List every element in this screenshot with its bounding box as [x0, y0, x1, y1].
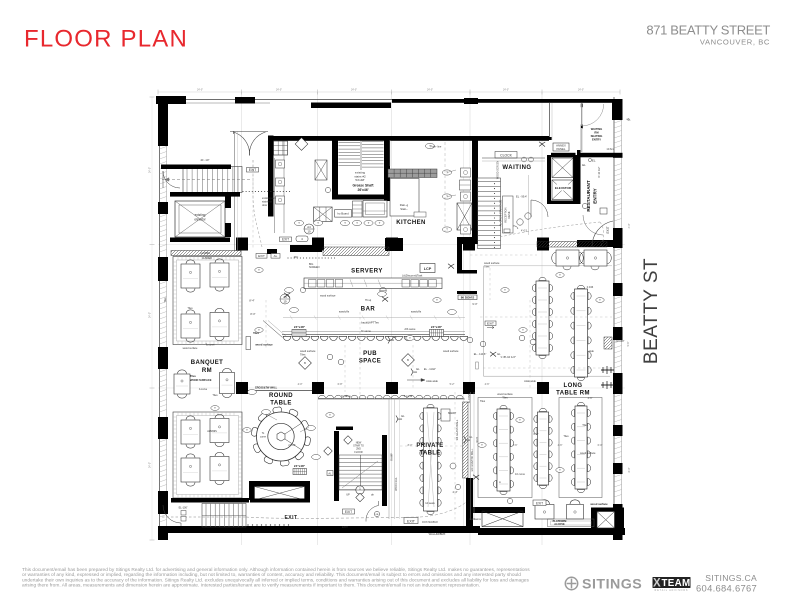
svg-text:EXIT: EXIT — [249, 168, 257, 172]
svg-text:DESK: DESK — [507, 211, 511, 218]
svg-text:EXIT: EXIT — [345, 510, 352, 514]
svg-text:FIRST&WBMX: FIRST&WBMX — [422, 521, 438, 524]
svg-text:RM: RM — [202, 368, 212, 374]
svg-text:Tiles: Tiles — [300, 352, 306, 356]
svg-text:EXIT: EXIT — [284, 515, 297, 521]
svg-text:26'x46': 26'x46' — [357, 188, 368, 192]
svg-text:Tiles: Tiles — [212, 394, 218, 397]
svg-text:SPACE: SPACE — [359, 359, 381, 365]
svg-text:24'-0": 24'-0" — [427, 89, 433, 92]
svg-text:3/4 B: 3/4 B — [476, 437, 479, 443]
svg-text:4'-6": 4'-6" — [588, 397, 593, 400]
svg-text:9'-6": 9'-6" — [627, 341, 630, 346]
svg-text:ALM99S: ALM99S — [207, 430, 217, 433]
svg-text:EL - 110A": EL - 110A" — [424, 367, 436, 371]
svg-text:TABLE RM: TABLE RM — [556, 391, 590, 397]
svg-text:WOOD SCREEN: WOOD SCREEN — [497, 161, 500, 180]
svg-text:wood surface: wood surface — [254, 343, 273, 347]
svg-text:ENTRY: ENTRY — [592, 138, 601, 142]
svg-text:EXIT: EXIT — [342, 525, 348, 529]
svg-text:SITINGS: SITINGS — [582, 577, 642, 593]
svg-text:8'-0": 8'-0" — [628, 467, 631, 472]
svg-text:ENTRY: ENTRY — [593, 188, 598, 203]
svg-text:4'-6": 4'-6" — [558, 444, 563, 447]
svg-text:EL: EL — [393, 335, 397, 339]
svg-text:Tc same: Tc same — [361, 329, 371, 333]
svg-text:EXIT: EXIT — [258, 254, 265, 258]
svg-text:B: B — [304, 361, 306, 365]
svg-text:24'-0": 24'-0" — [149, 462, 152, 468]
svg-text:4'-0": 4'-0" — [628, 223, 631, 228]
svg-text:RESTAURANT: RESTAURANT — [586, 180, 591, 211]
svg-text:WOOD SURFACE: WOOD SURFACE — [190, 378, 212, 382]
svg-text:Tc same: Tc same — [341, 394, 351, 398]
svg-text:AL OPEN STAIRCASE: AL OPEN STAIRCASE — [499, 200, 503, 227]
svg-text:Tiles: Tiles — [190, 374, 196, 378]
svg-text:ROUND: ROUND — [269, 393, 293, 399]
svg-text:Tiles: Tiles — [187, 307, 193, 310]
svg-text:A4: A4 — [307, 225, 311, 229]
svg-text:8'-0": 8'-0" — [408, 444, 413, 447]
svg-text:24'-0": 24'-0" — [503, 89, 509, 92]
svg-text:EXIT: EXIT — [536, 501, 543, 505]
svg-text:Stati--: Stati-- — [400, 207, 408, 211]
svg-text:24"x48": 24"x48" — [431, 325, 443, 329]
svg-text:or warranties of any kind, exp: or warranties of any kind, expressed or … — [22, 572, 521, 578]
svg-text:Tc curve: Tc curve — [205, 344, 215, 347]
svg-text:871 BEATTY STREET: 871 BEATTY STREET — [646, 23, 770, 38]
svg-text:EIC GRAPHIC WALL: EIC GRAPHIC WALL — [471, 448, 474, 471]
svg-text:A curve: A curve — [199, 388, 208, 391]
svg-text:6'-10 1/2": 6'-10 1/2" — [597, 166, 601, 177]
svg-text:wood surface: wood surface — [589, 502, 608, 506]
svg-text:LONG: LONG — [564, 383, 583, 389]
svg-text:24'-0": 24'-0" — [197, 89, 203, 92]
svg-text:EL - 99.4': EL - 99.4' — [516, 195, 527, 199]
svg-text:AL: AL — [274, 254, 278, 258]
svg-text:24'-0": 24'-0" — [149, 312, 152, 318]
svg-text:Tiles: Tiles — [480, 400, 486, 403]
svg-text:ho Board: ho Board — [337, 212, 349, 216]
svg-text:24'-0": 24'-0" — [149, 167, 152, 173]
svg-text:stair/exit: stair/exit — [262, 199, 272, 203]
svg-text:EXIT: EXIT — [282, 238, 289, 242]
svg-text:X: X — [653, 578, 661, 590]
svg-text:d/S same: d/S same — [405, 327, 417, 331]
svg-text:Aisle aisle: Aisle aisle — [524, 379, 536, 383]
svg-text:Lt&Disconn&Task: Lt&Disconn&Task — [402, 274, 423, 278]
svg-text:24"x48": 24"x48" — [294, 325, 306, 329]
svg-text:wood surface: wood surface — [183, 347, 198, 350]
svg-text:24'-0": 24'-0" — [276, 89, 282, 92]
svg-text:wood surface: wood surface — [443, 349, 459, 353]
svg-text:24'-0": 24'-0" — [351, 89, 357, 92]
svg-text:3/4 GLASS WALL: 3/4 GLASS WALL — [455, 419, 459, 440]
svg-text:TEAM: TEAM — [662, 578, 691, 589]
svg-text:Fab+ line: Fab+ line — [431, 145, 442, 149]
svg-text:BANQUET: BANQUET — [191, 360, 223, 366]
svg-text:EL: EL — [469, 435, 473, 439]
svg-text:6 curve: 6 curve — [404, 394, 413, 398]
svg-text:EL - 110.6": EL - 110.6" — [474, 352, 487, 356]
svg-text:ALCOVE: ALCOVE — [554, 523, 565, 526]
svg-text:EXIT: EXIT — [606, 226, 610, 233]
svg-text:SERVERY: SERVERY — [351, 269, 383, 275]
svg-text:RAMP: RAMP — [390, 453, 394, 461]
svg-text:wood surface: wood surface — [497, 392, 513, 396]
svg-text:saw/offs: saw/offs — [339, 310, 350, 314]
svg-text:PANEL: PANEL — [557, 147, 566, 151]
svg-text:EL: EL — [416, 367, 420, 371]
svg-text:AU99ER: AU99ER — [202, 256, 212, 260]
svg-text:existing exit: existing exit — [262, 196, 276, 200]
svg-text:24"x48": 24"x48" — [294, 464, 306, 468]
svg-text:EL: EL — [401, 414, 405, 418]
svg-text:9'-0": 9'-0" — [472, 302, 477, 306]
svg-text:Tiles: Tiles — [484, 264, 490, 268]
svg-text:BAR: BAR — [361, 307, 376, 313]
svg-text:4'-6": 4'-6" — [513, 444, 518, 447]
svg-text:6'-8": 6'-8" — [338, 383, 343, 386]
svg-text:54'x48': 54'x48' — [355, 178, 365, 182]
svg-text:SCREEN: SCREEN — [309, 266, 320, 269]
svg-text:CLOCK: CLOCK — [500, 153, 512, 157]
svg-text:wood surface: wood surface — [300, 349, 316, 353]
svg-text:8'-4": 8'-4" — [249, 299, 254, 303]
svg-text:WAITING: WAITING — [591, 127, 603, 131]
svg-text:BEATTY ST: BEATTY ST — [641, 258, 662, 364]
svg-text:Tiles: Tiles — [582, 423, 588, 427]
svg-text:19: 19 — [307, 230, 311, 234]
svg-text:LCP: LCP — [424, 267, 432, 271]
svg-text:wood surface: wood surface — [320, 294, 336, 298]
svg-text:wood surface: wood surface — [580, 451, 596, 455]
svg-text:WOOD RAIL: WOOD RAIL — [395, 476, 398, 490]
svg-text:6'-0": 6'-0" — [598, 444, 603, 447]
svg-text:8'-0": 8'-0" — [250, 312, 255, 316]
svg-text:KITCHEN: KITCHEN — [396, 220, 425, 226]
svg-text:Tiles: Tiles — [502, 395, 508, 399]
svg-text:Aisle aisle: Aisle aisle — [426, 379, 438, 383]
svg-text:0.046: 0.046 — [587, 285, 594, 289]
svg-text:5'-2": 5'-2" — [450, 383, 455, 386]
svg-text:FLOOR: FLOOR — [354, 451, 363, 454]
svg-text:elevator: elevator — [194, 218, 206, 222]
svg-text:FLOOR PLAN: FLOOR PLAN — [24, 26, 188, 53]
svg-text:WALL&WBMX: WALL&WBMX — [429, 532, 446, 536]
svg-text:76 sq: 76 sq — [365, 298, 372, 302]
svg-text:CROSS&TW WALL: CROSS&TW WALL — [255, 387, 278, 390]
svg-text:RECEPTION: RECEPTION — [504, 207, 508, 222]
svg-text:RIC: RIC — [294, 255, 299, 259]
svg-text:6'-10 1/2": 6'-10 1/2" — [504, 355, 516, 359]
svg-text:RETAIL ADVISORS: RETAIL ADVISORS — [655, 589, 689, 592]
svg-text:AL: AL — [328, 471, 332, 475]
svg-text:41'-10": 41'-10" — [200, 158, 209, 162]
svg-text:curve: curve — [260, 435, 267, 438]
svg-text:86 DON'S: 86 DON'S — [461, 296, 475, 300]
svg-text:4'-0": 4'-0" — [298, 383, 303, 386]
svg-text:6'-0": 6'-0" — [534, 433, 539, 436]
svg-text:Tiles: Tiles — [164, 297, 167, 303]
svg-text:Tiles: Tiles — [563, 435, 569, 438]
svg-text:m: m — [499, 481, 501, 484]
svg-text:EL-100': EL-100' — [179, 506, 188, 510]
svg-text:SEATING: SEATING — [591, 134, 603, 138]
svg-text:VANCOUVER, BC: VANCOUVER, BC — [700, 38, 770, 47]
svg-text:PUB: PUB — [363, 351, 377, 357]
svg-text:arising there from. All areas,: arising there from. All areas, measureme… — [22, 583, 480, 589]
svg-text:existing: existing — [195, 213, 206, 217]
svg-text:9'-0": 9'-0" — [501, 356, 506, 359]
svg-text:24'-0": 24'-0" — [578, 89, 584, 92]
svg-text:UP: UP — [346, 493, 350, 497]
svg-text:EL: EL — [582, 163, 586, 167]
svg-text:24'x48': 24'x48' — [288, 444, 296, 447]
svg-text:B: B — [407, 358, 409, 362]
svg-text:mall&wmx: mall&wmx — [469, 517, 482, 521]
svg-text:SMART: SMART — [448, 412, 457, 415]
svg-text:ELEVATOR: ELEVATOR — [555, 186, 572, 190]
svg-text:TABLE: TABLE — [270, 401, 292, 407]
svg-text:10.6m: 10.6m — [606, 147, 613, 151]
svg-text:undertake their own inquiries: undertake their own inquiries as to the … — [22, 577, 529, 583]
svg-text:4'-6": 4'-6" — [485, 383, 490, 386]
svg-text:EXIT: EXIT — [407, 519, 416, 523]
svg-text:back&APTTes: back&APTTes — [361, 321, 379, 325]
svg-text:wood surface: wood surface — [484, 261, 500, 265]
svg-text:14 seats: 14 seats — [425, 502, 435, 505]
svg-text:604.684.6767: 604.684.6767 — [696, 583, 757, 594]
svg-text:24"x48": 24"x48" — [616, 339, 625, 343]
svg-text:ALM99S: ALM99S — [200, 251, 210, 255]
svg-text:EL.: EL. — [592, 159, 596, 163]
svg-text:saw/offs: saw/offs — [411, 310, 422, 314]
svg-text:door: door — [262, 203, 267, 207]
svg-text:10 curve: 10 curve — [515, 472, 526, 476]
svg-text:WAITING: WAITING — [502, 165, 531, 171]
svg-text:EXIT: EXIT — [487, 322, 494, 326]
svg-text:TABLE: TABLE — [419, 451, 440, 457]
svg-text:This document/email has been p: This document/email has been prepared by… — [22, 567, 530, 573]
svg-text:SITINGS.CA: SITINGS.CA — [705, 573, 757, 583]
